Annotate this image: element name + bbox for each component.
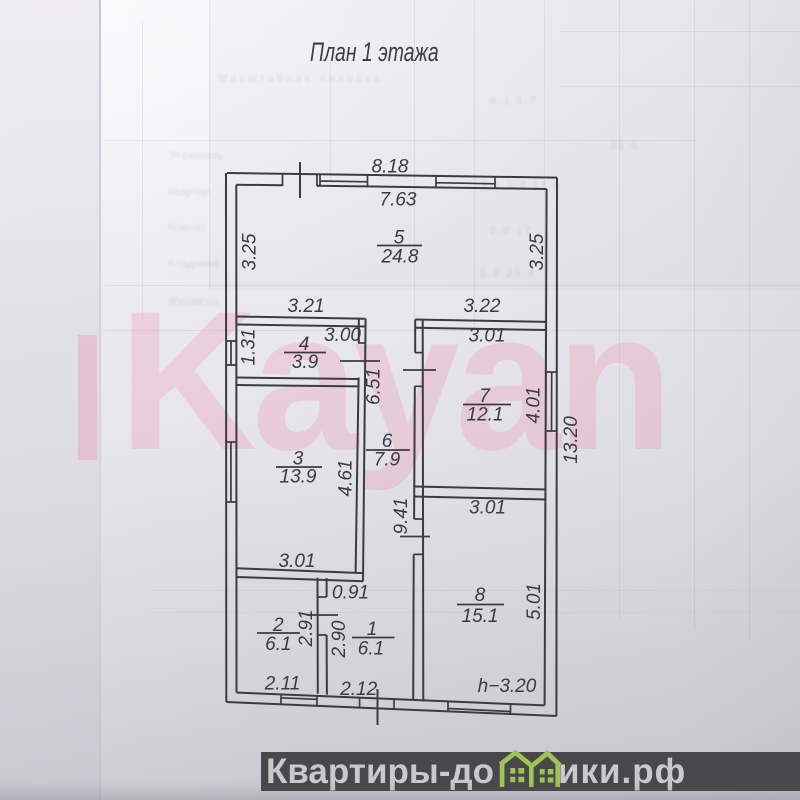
svg-text:3.25: 3.25 — [527, 233, 548, 270]
svg-text:0.91: 0.91 — [332, 583, 369, 604]
svg-text:9.41: 9.41 — [391, 498, 412, 535]
svg-text:2.91: 2.91 — [296, 610, 317, 648]
svg-text:1: 1 — [367, 619, 378, 640]
svg-text:1.31: 1.31 — [239, 329, 260, 366]
svg-text:5.01: 5.01 — [524, 583, 545, 620]
svg-text:15.1: 15.1 — [462, 606, 499, 627]
svg-text:2.11: 2.11 — [264, 673, 301, 694]
svg-text:3.9: 3.9 — [292, 352, 319, 373]
svg-text:4.01: 4.01 — [524, 387, 545, 424]
svg-text:3.01: 3.01 — [469, 498, 506, 519]
svg-text:h−3.20: h−3.20 — [478, 676, 537, 697]
svg-text:12.1: 12.1 — [467, 405, 504, 426]
svg-text:6.1: 6.1 — [358, 639, 384, 660]
svg-text:6.1: 6.1 — [265, 634, 291, 655]
svg-text:7.9: 7.9 — [374, 450, 401, 471]
svg-text:6.51: 6.51 — [364, 368, 385, 405]
svg-text:4.61: 4.61 — [336, 460, 357, 497]
svg-text:3.25: 3.25 — [240, 233, 261, 270]
svg-text:24.8: 24.8 — [381, 247, 419, 268]
svg-text:13.9: 13.9 — [280, 467, 317, 488]
svg-text:3.21: 3.21 — [288, 296, 325, 317]
svg-text:3.01: 3.01 — [469, 326, 506, 347]
svg-text:2: 2 — [272, 615, 284, 636]
svg-text:2.90: 2.90 — [329, 620, 350, 658]
svg-text:13.20: 13.20 — [561, 416, 582, 464]
svg-text:8.18: 8.18 — [372, 157, 409, 178]
svg-text:7.63: 7.63 — [380, 190, 417, 211]
svg-text:3.22: 3.22 — [464, 296, 501, 317]
svg-text:3.01: 3.01 — [279, 551, 316, 572]
svg-text:5: 5 — [394, 228, 405, 249]
svg-text:3.00: 3.00 — [324, 325, 361, 346]
svg-text:2.12: 2.12 — [339, 679, 377, 700]
svg-text:8: 8 — [475, 585, 486, 606]
